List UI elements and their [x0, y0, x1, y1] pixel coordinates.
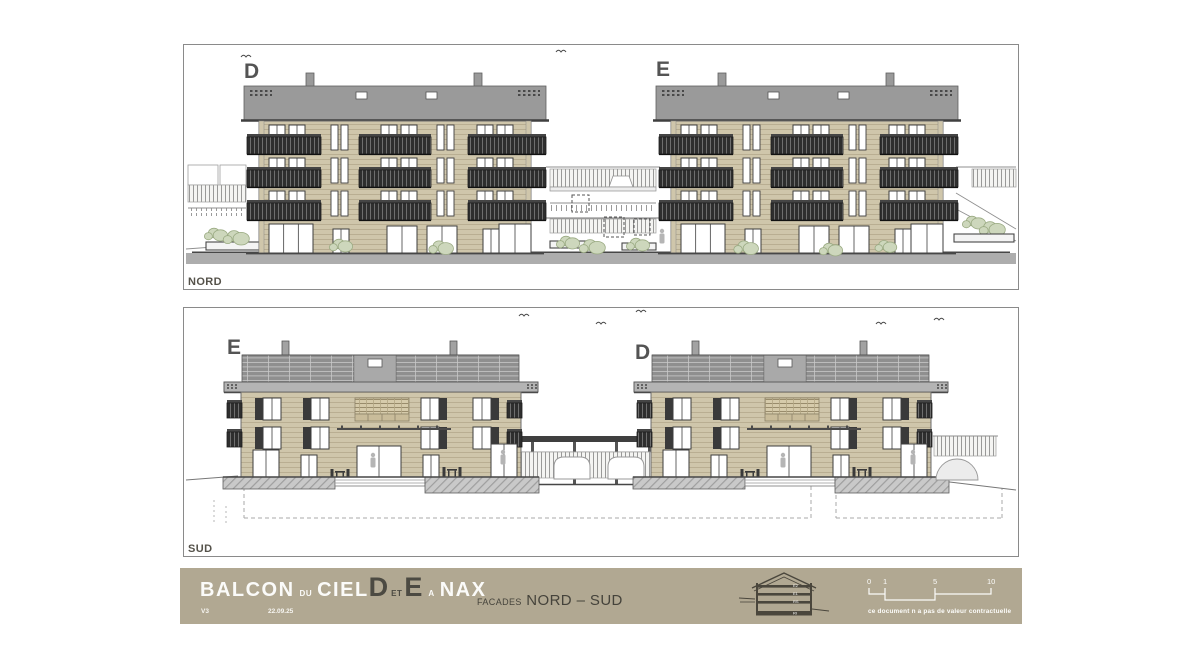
sud-elevation-drawing [184, 308, 1018, 556]
title-block: BALCON DU CIEL D ET E A NAX V3 22.09.25 … [180, 568, 1022, 624]
scale-bar: 0 1 5 10 [866, 574, 1006, 606]
sud-view-label: SUD [188, 543, 212, 555]
building-label-e-sud: E [227, 336, 241, 360]
scale-tick-0: 0 [867, 577, 871, 586]
svg-text:RS: RS [793, 599, 799, 604]
title-building-d: D [369, 572, 390, 603]
subtitle-facades: FACADES [477, 597, 522, 607]
title-word: CIEL [317, 579, 369, 602]
project-title: BALCON DU CIEL D ET E A NAX [200, 572, 486, 603]
version-label: V3 [201, 608, 209, 615]
title-building-e: E [404, 572, 423, 603]
sud-elevation-panel: E D SUD [183, 307, 1019, 557]
title-word: A [428, 589, 434, 598]
disclaimer-text: ce document n a pas de valeur contractue… [868, 608, 1011, 615]
sheet-subtitle: FACADES NORD – SUD [477, 592, 623, 610]
scale-tick-10: 10 [987, 577, 995, 586]
building-label-d-nord: D [244, 60, 259, 84]
nord-elevation-panel: D E NORD [183, 44, 1019, 290]
svg-text:RI: RI [793, 611, 797, 616]
title-word: BALCON [200, 579, 295, 602]
scale-tick-5: 5 [933, 577, 937, 586]
subtitle-nord-sud: NORD – SUD [526, 592, 623, 609]
title-word: ET [391, 589, 402, 598]
building-label-e-nord: E [656, 58, 670, 82]
scale-tick-1: 1 [883, 577, 887, 586]
building-section-icon: E2E1RSRI [738, 571, 830, 623]
drawing-sheet: D E NORD E D SUD BALCON DU CIEL D ET E A… [0, 0, 1200, 659]
nord-view-label: NORD [188, 276, 222, 288]
nord-elevation-drawing [184, 45, 1018, 289]
svg-text:E1: E1 [793, 591, 799, 596]
date-label: 22.09.25 [268, 608, 293, 615]
svg-text:E2: E2 [793, 583, 799, 588]
building-label-d-sud: D [635, 341, 650, 365]
title-word: DU [300, 589, 313, 598]
